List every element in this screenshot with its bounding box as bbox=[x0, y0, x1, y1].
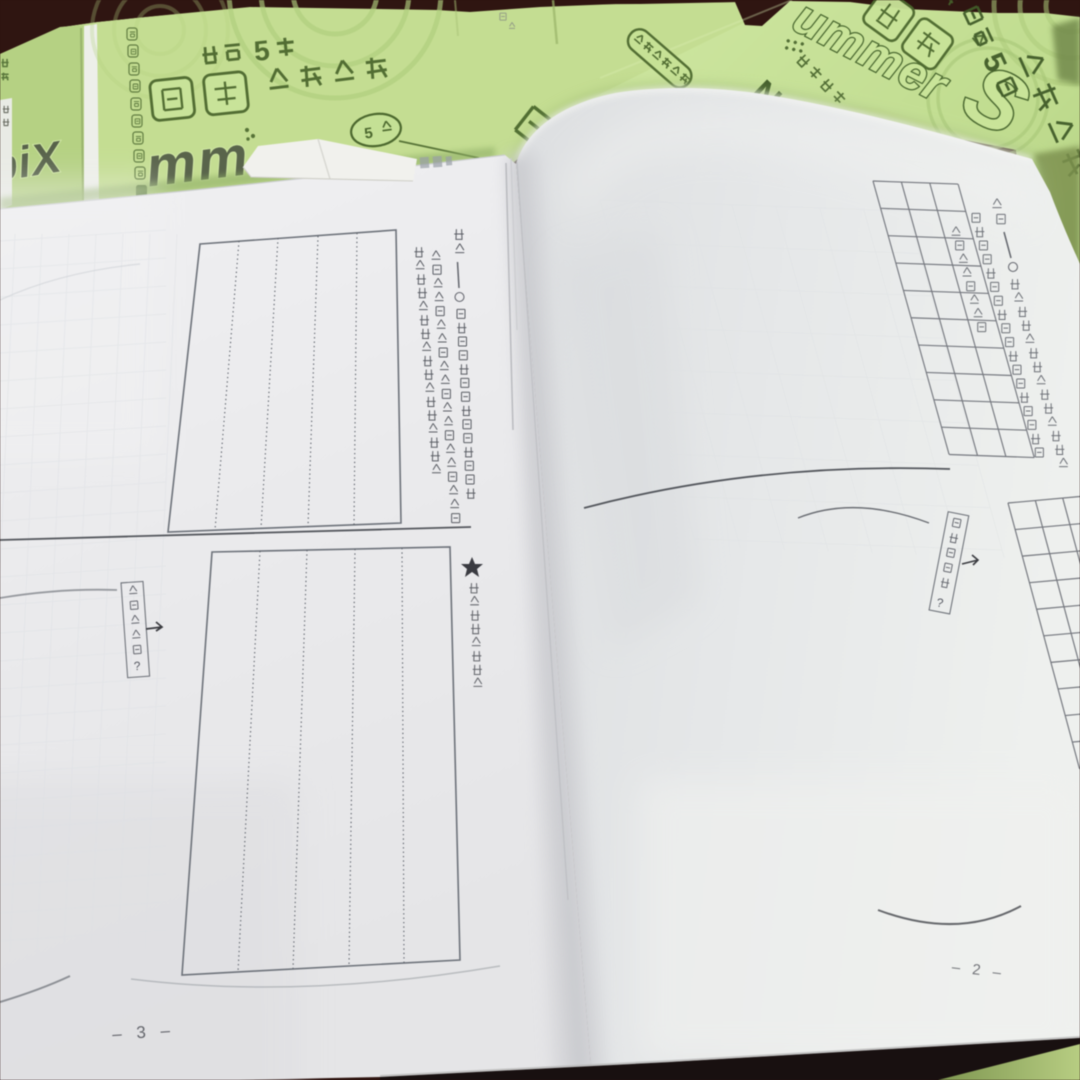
svg-text:?: ? bbox=[133, 659, 141, 673]
svg-text:5: 5 bbox=[252, 35, 271, 67]
